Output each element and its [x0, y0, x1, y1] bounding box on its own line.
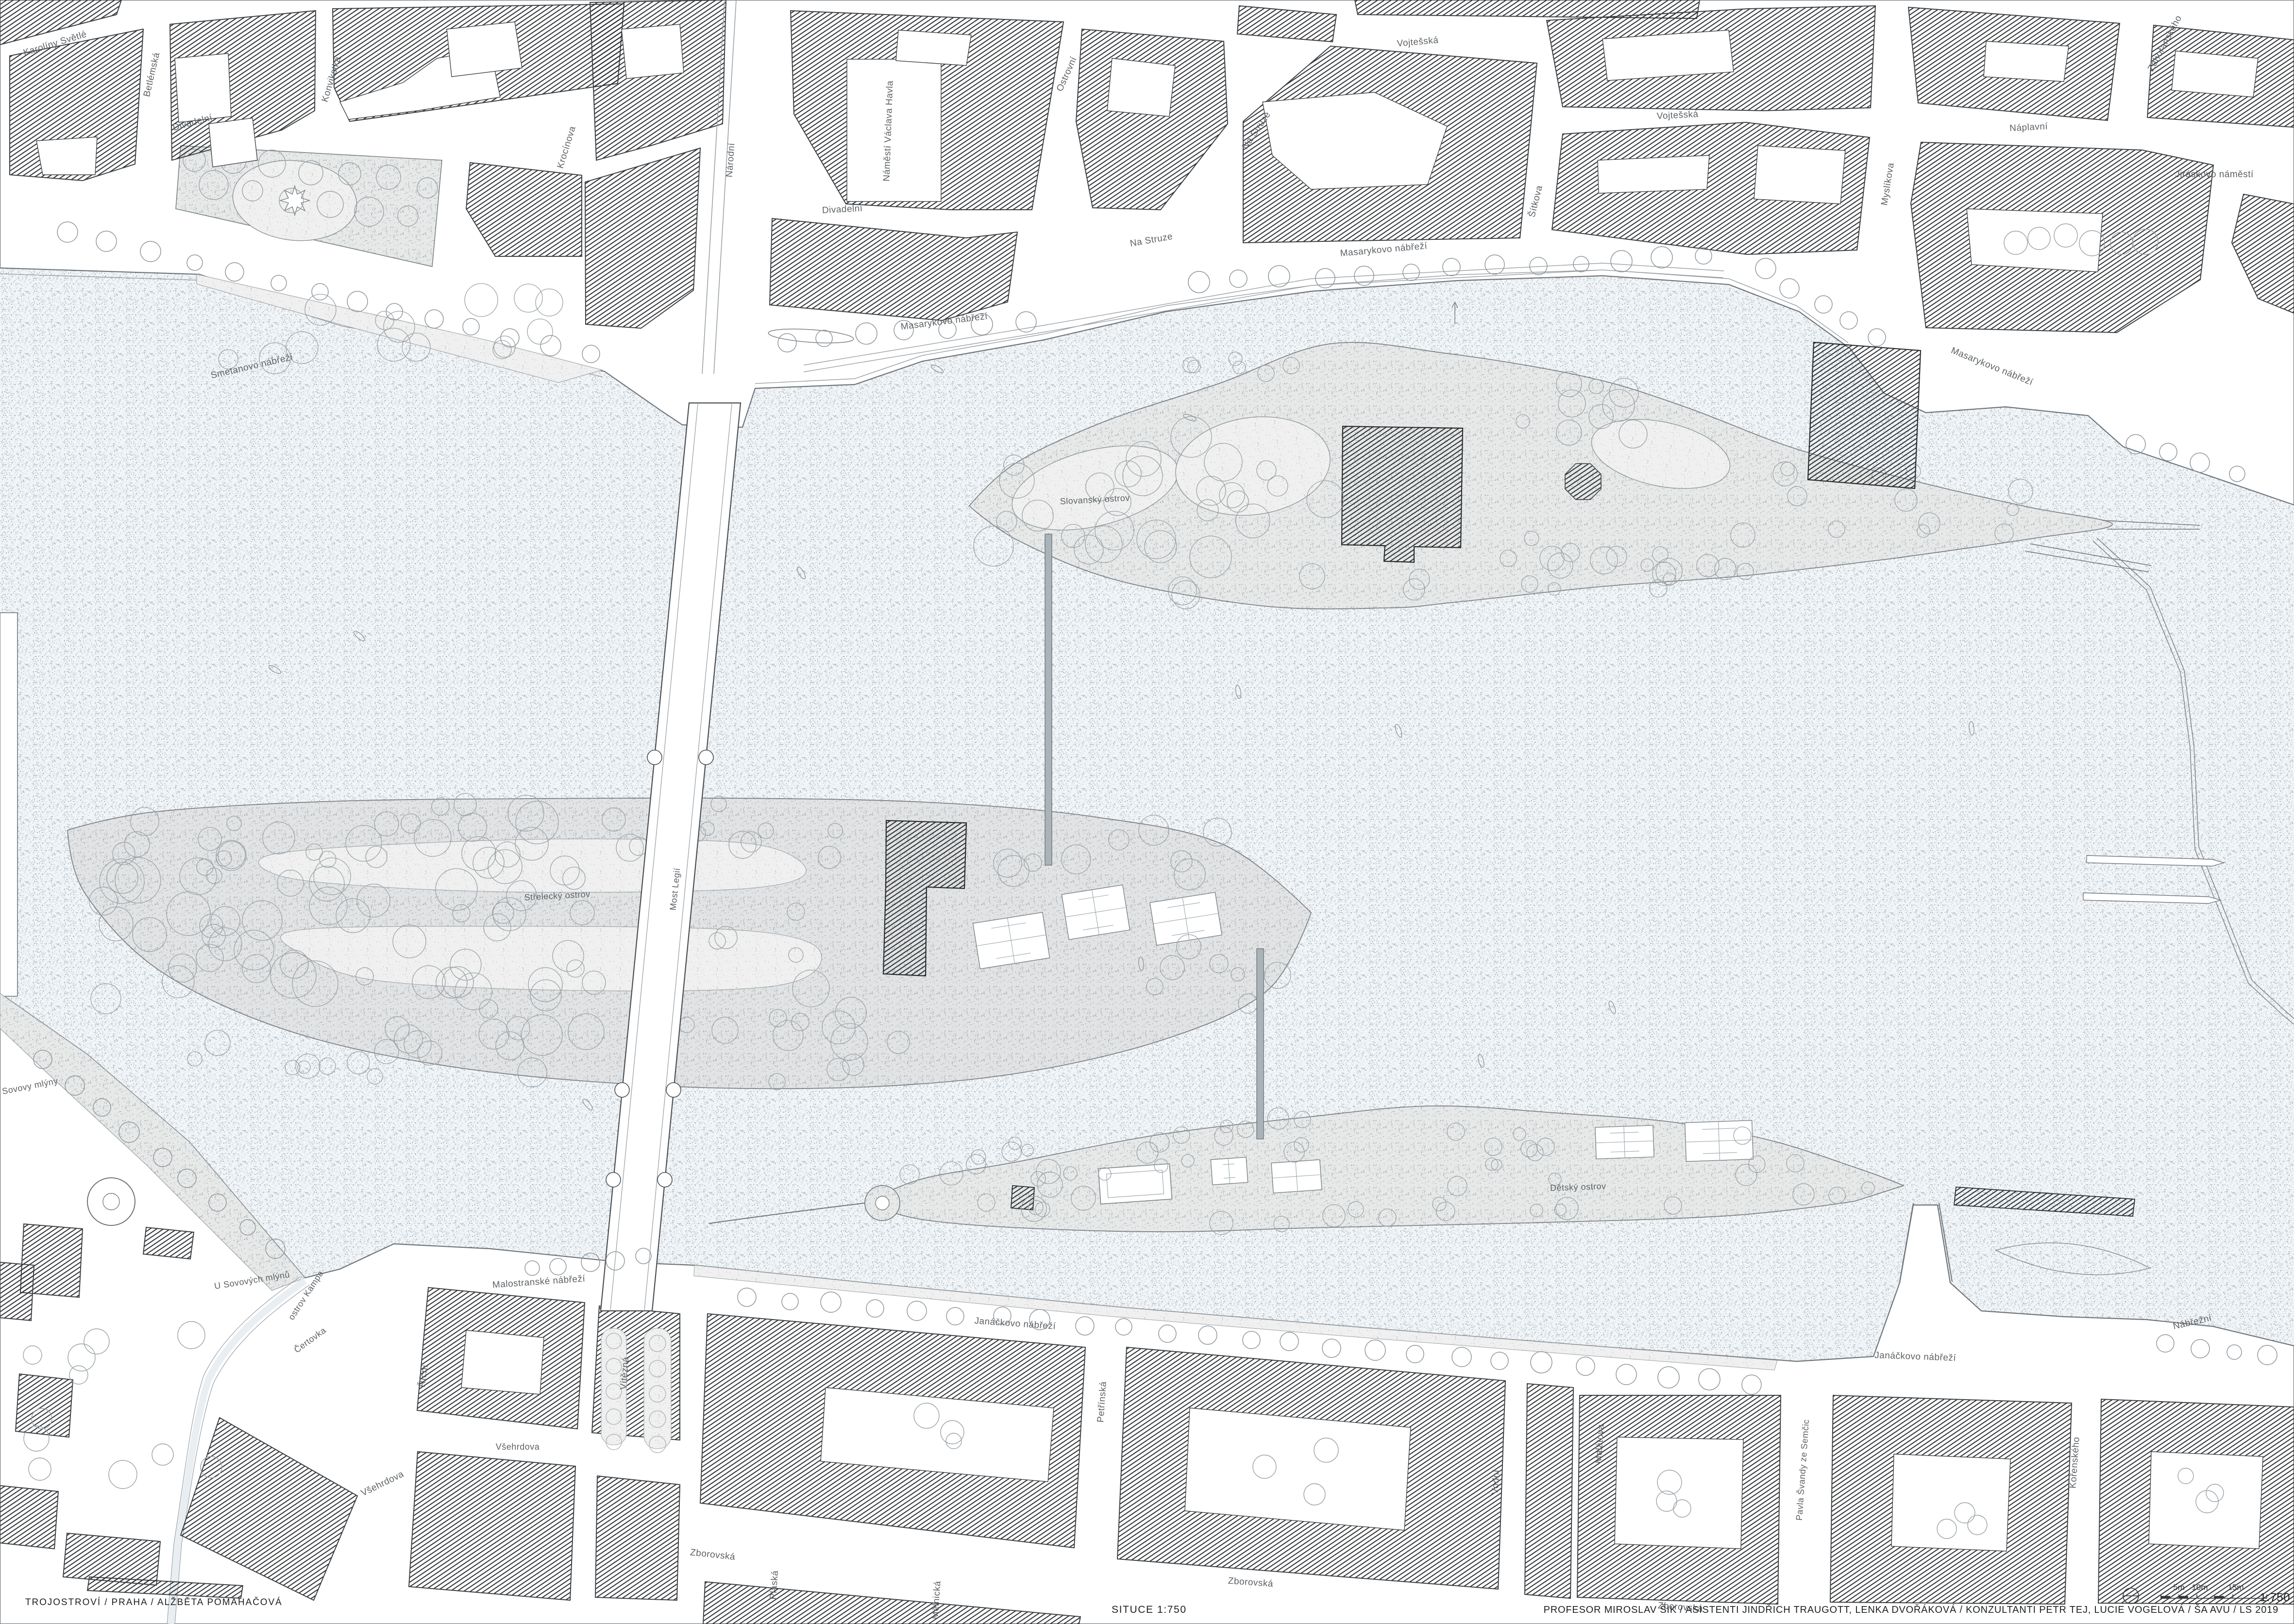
- svg-text:1:750: 1:750: [2260, 1591, 2290, 1604]
- svg-text:5m: 5m: [2173, 1583, 2185, 1592]
- svg-text:Náplavní: Náplavní: [2009, 121, 2048, 134]
- svg-text:Divadelní: Divadelní: [822, 203, 863, 216]
- svg-text:Dětský ostrov: Dětský ostrov: [1550, 1181, 1606, 1193]
- svg-text:15m: 15m: [2227, 1583, 2243, 1592]
- svg-text:Všehrdova: Všehrdova: [496, 1442, 540, 1452]
- svg-text:PROFESOR MIROSLAV ŠIK / ASISTE: PROFESOR MIROSLAV ŠIK / ASISTENTI JINDŘI…: [1544, 1604, 2278, 1615]
- svg-text:SITUCE 1:750: SITUCE 1:750: [1112, 1604, 1187, 1615]
- svg-text:10m: 10m: [2192, 1583, 2208, 1592]
- svg-text:Vojtešská: Vojtešská: [1656, 109, 1699, 121]
- svg-text:Vodní: Vodní: [1490, 1469, 1502, 1495]
- svg-text:TROJOSTROVÍ / PRAHA / ALŽBĚTA: TROJOSTROVÍ / PRAHA / ALŽBĚTA POMAHAČOVÁ: [25, 1597, 283, 1607]
- svg-text:Plaská: Plaská: [768, 1570, 780, 1600]
- svg-text:Jiráskovo náměstí: Jiráskovo náměstí: [2175, 169, 2254, 180]
